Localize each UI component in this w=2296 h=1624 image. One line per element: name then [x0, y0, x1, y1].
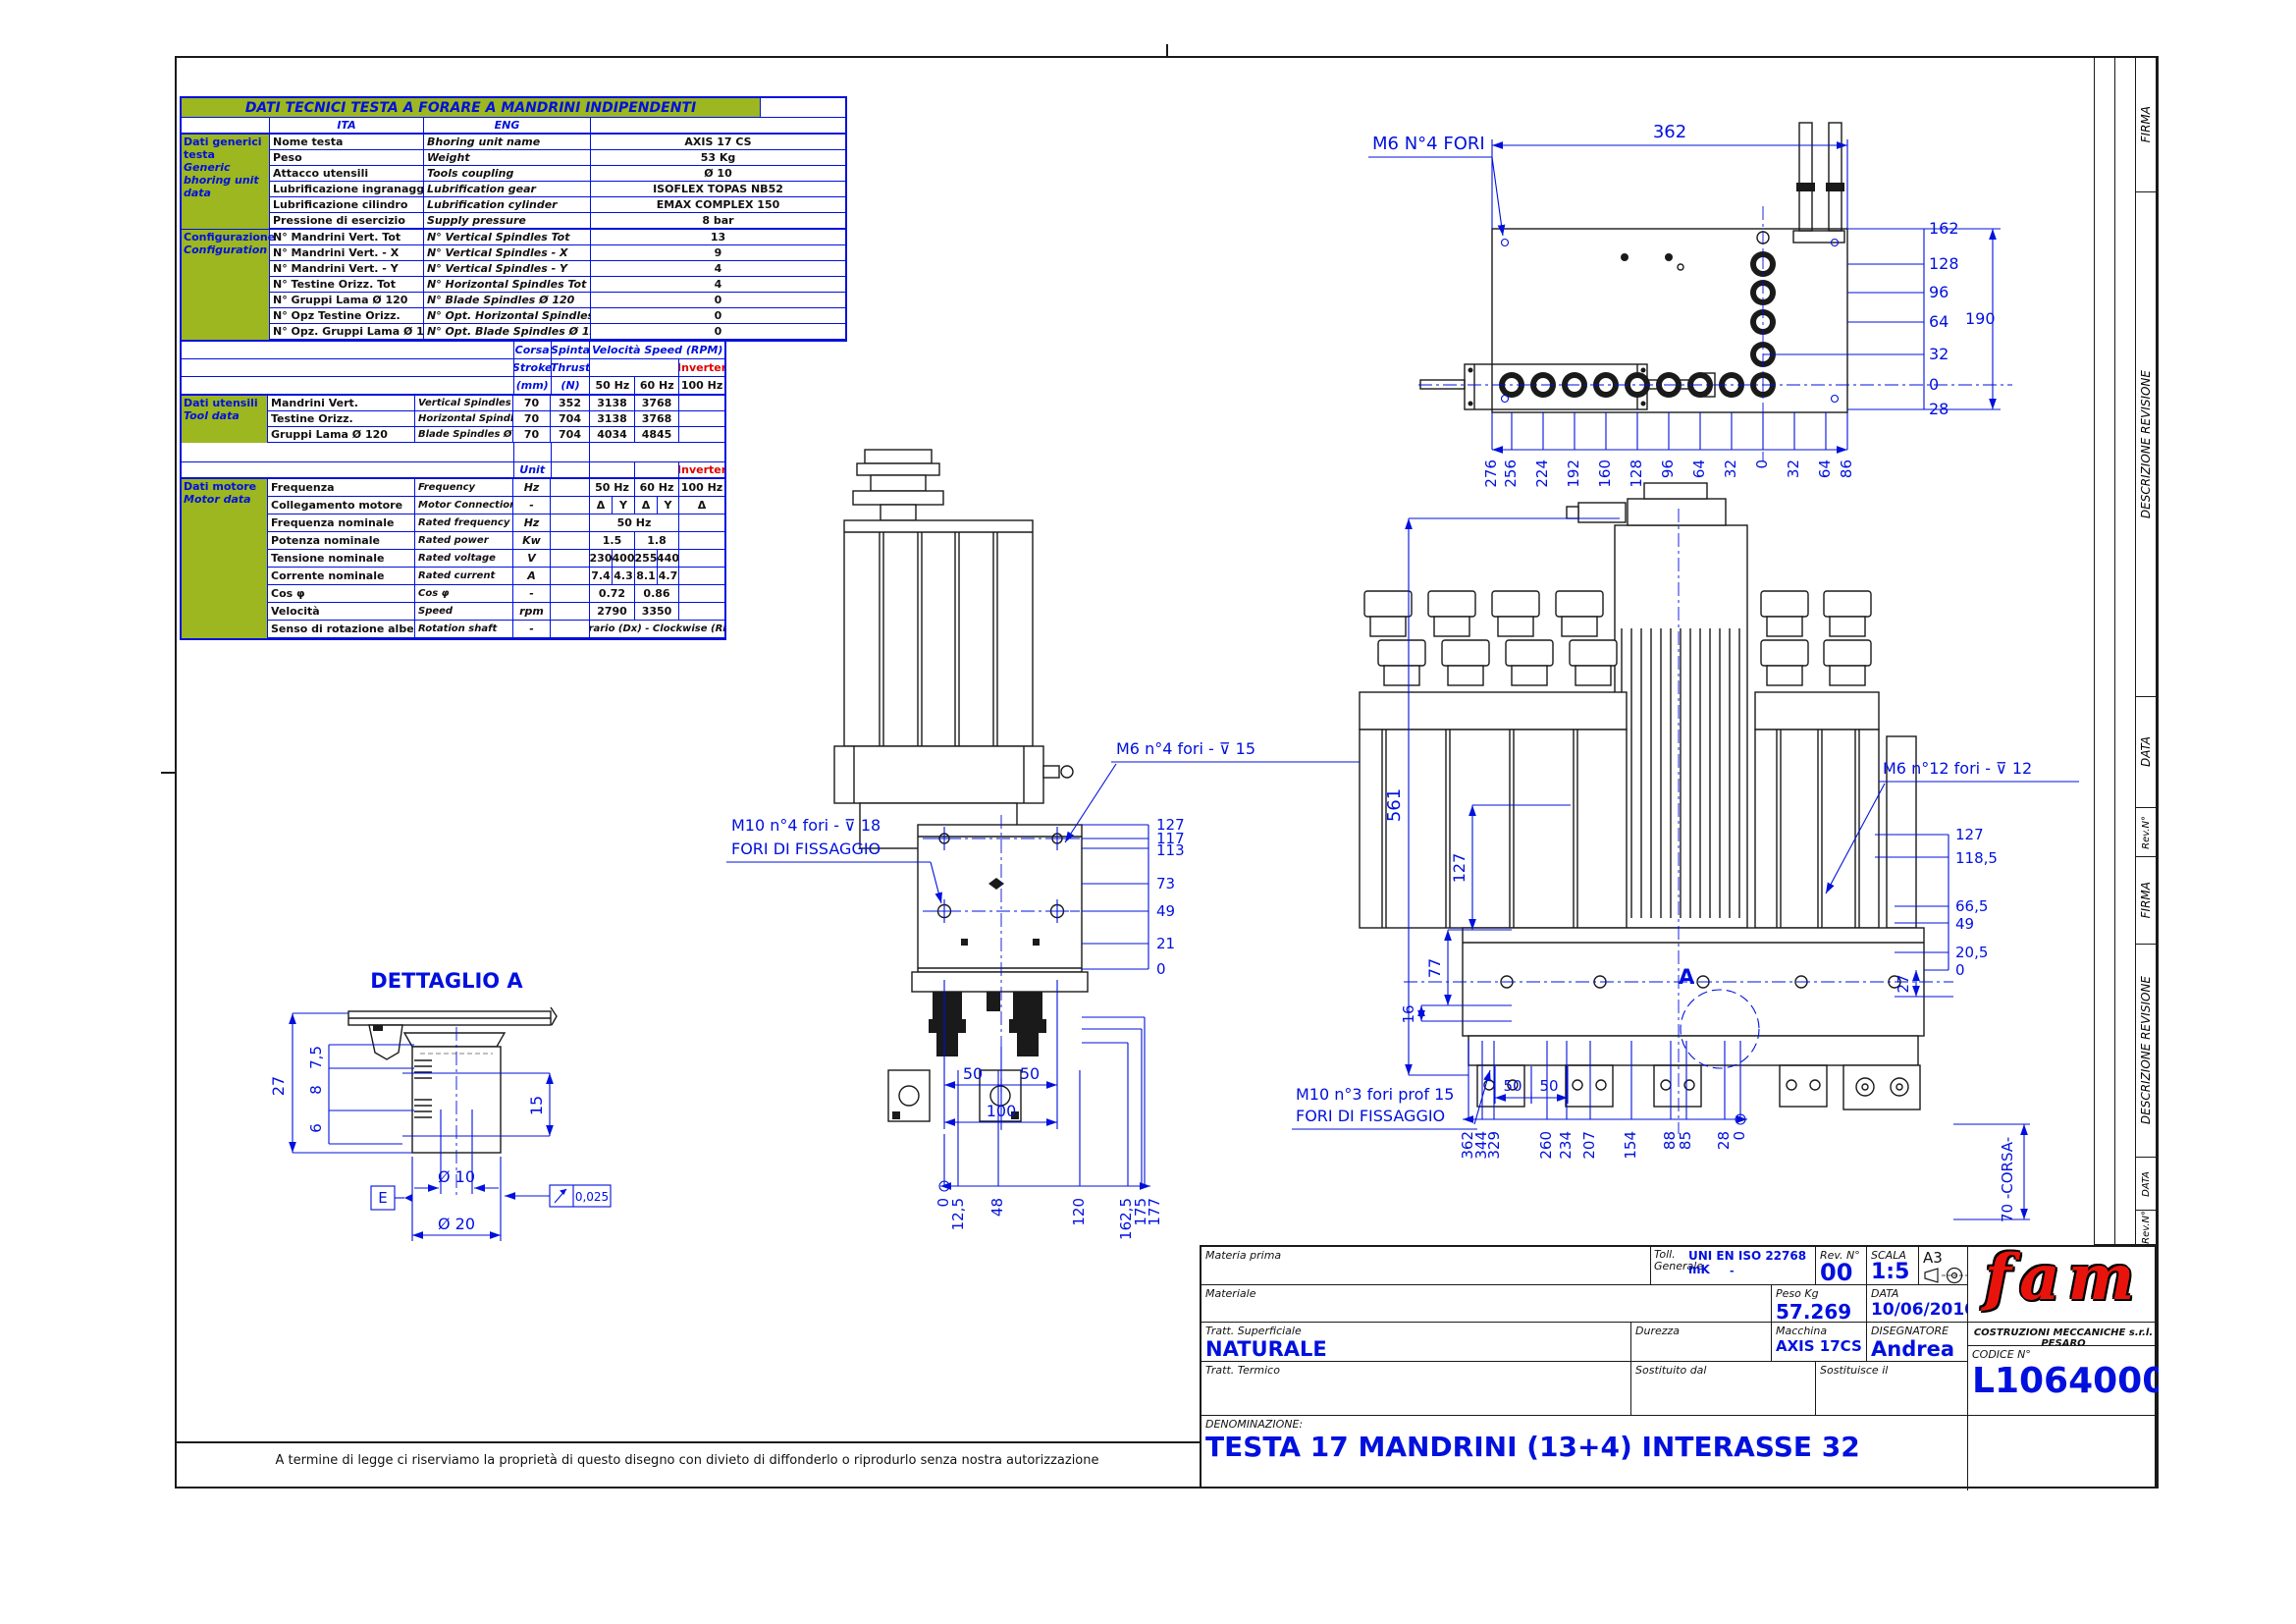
- blank-cell: [182, 359, 514, 377]
- tratt-superficiale-cell: Tratt. Superficiale NATURALE: [1201, 1323, 1631, 1362]
- svg-text:177: 177: [1146, 1198, 1163, 1226]
- svg-text:49: 49: [1955, 915, 1974, 933]
- group-tool: Dati utensili Tool data: [182, 396, 268, 443]
- svg-text:260: 260: [1537, 1131, 1555, 1160]
- svg-text:207: 207: [1580, 1131, 1598, 1160]
- svg-text:6: 6: [307, 1123, 325, 1133]
- front-m10-label: M10 n°4 fori - ⊽ 18: [731, 816, 881, 835]
- unit-header-row: Unit Inverter: [182, 462, 724, 478]
- svg-text:0: 0: [1731, 1131, 1748, 1141]
- tratt-termico-cell: Tratt. Termico: [1201, 1362, 1631, 1416]
- sostituito-cell: Sostituito dal: [1631, 1362, 1816, 1416]
- svg-text:66,5: 66,5: [1955, 897, 1988, 915]
- section-configuration: Configurazione Configuration N° Mandrini…: [182, 229, 845, 340]
- svg-text:64: 64: [1816, 460, 1834, 478]
- blank-cell: [514, 443, 552, 462]
- revision-label: DATA: [2136, 1158, 2156, 1211]
- materiale-cell: Materiale: [1201, 1285, 1772, 1323]
- svg-text:77: 77: [1425, 958, 1444, 978]
- side-m6-label: M6 n°12 fori - ⊽ 12: [1883, 759, 2032, 778]
- blank-cell: [1968, 1416, 2159, 1490]
- svg-text:49: 49: [1156, 902, 1175, 920]
- macchina-cell: Macchina AXIS 17CS: [1772, 1323, 1867, 1362]
- revision-labels-col: FIRMA DESCRIZIONE REVISIONE DATA Rev.N° …: [2136, 57, 2156, 1244]
- svg-text:Ø 20: Ø 20: [438, 1215, 475, 1233]
- revision-strip: FIRMA DESCRIZIONE REVISIONE DATA Rev.N° …: [2094, 56, 2157, 1245]
- svg-text:32: 32: [1785, 460, 1802, 478]
- svg-text:100: 100: [987, 1102, 1017, 1120]
- svg-text:113: 113: [1156, 841, 1185, 859]
- svg-text:32: 32: [1929, 345, 1949, 363]
- svg-text:21: 21: [1156, 935, 1175, 952]
- revision-label: DATA: [2136, 697, 2156, 809]
- detail-a-drawing: DETTAGLIO A 27 7,5 8 6 15 Ø 10 Ø 20 E: [255, 962, 677, 1286]
- row-label: Nome testa: [270, 135, 424, 150]
- projection-symbol-icon: [1923, 1267, 1968, 1284]
- stroke-header: Stroke: [514, 359, 552, 377]
- datum-e: E: [378, 1189, 387, 1207]
- title-block: Materia prima Toll.Generale UNI EN ISO 2…: [1200, 1245, 2157, 1489]
- svg-text:234: 234: [1557, 1131, 1575, 1160]
- svg-text:128: 128: [1929, 254, 1959, 273]
- side-part-outline: [1360, 483, 1924, 1110]
- runout-value: 0,025: [575, 1190, 609, 1204]
- blank-cell: [591, 118, 845, 134]
- denominazione-cell: DENOMINAZIONE: TESTA 17 MANDRINI (13+4) …: [1201, 1416, 1968, 1490]
- side-view-drawing: 561 127 77 16 M6 n°12 fori - ⊽ 12 127 11…: [1266, 481, 2081, 1247]
- dim-27: 27: [1895, 974, 1912, 993]
- unit-header: Unit: [514, 462, 552, 478]
- formato-cell: A3: [1919, 1247, 1968, 1285]
- revision-label: Rev.N°: [2136, 1211, 2156, 1244]
- fold-mark-left: [161, 772, 177, 774]
- svg-text:50: 50: [1020, 1064, 1040, 1083]
- side-m10-label: M10 n°3 fori prof 15: [1296, 1085, 1454, 1104]
- speed-header: Velocità Speed (RPM): [590, 342, 724, 359]
- legal-disclaimer: A termine di legge ci riserviamo la prop…: [245, 1453, 1129, 1468]
- side-fiss-label: FORI DI FISSAGGIO: [1296, 1107, 1445, 1125]
- blank-separator-row: [182, 443, 724, 462]
- section-tool: Dati utensili Tool data Mandrini Vert.Ve…: [182, 395, 724, 443]
- speed-header-row1: Corsa Spinta Velocità Speed (RPM): [182, 342, 724, 359]
- inverter-header: Inverter: [679, 359, 724, 377]
- hz50-header: 50 Hz: [590, 377, 635, 395]
- svg-text:15: 15: [527, 1096, 546, 1115]
- durezza-cell: Durezza: [1631, 1323, 1772, 1362]
- svg-text:0: 0: [1753, 460, 1771, 469]
- corsa-header: Corsa: [514, 342, 552, 359]
- svg-text:8: 8: [307, 1085, 325, 1095]
- peso-cell: Peso Kg 57.269 kg: [1772, 1285, 1867, 1323]
- front-part-outline: [834, 450, 1088, 1121]
- svg-text:96: 96: [1659, 460, 1677, 478]
- rev-cell: Rev. N° 00: [1816, 1247, 1867, 1285]
- svg-text:32: 32: [1722, 460, 1739, 478]
- blank-cell: [182, 342, 514, 359]
- data-cell: DATA 10/06/2010: [1867, 1285, 1968, 1323]
- materia-prima-cell: Materia prima: [1201, 1247, 1651, 1285]
- revision-label: Rev.N°: [2136, 808, 2156, 856]
- svg-text:64: 64: [1690, 460, 1708, 478]
- table-upper-block: DATI TECNICI TESTA A FORARE A MANDRINI I…: [180, 96, 847, 342]
- plan-spindles: [1499, 232, 1776, 398]
- row-value: AXIS 17 CS: [591, 135, 845, 150]
- svg-text:73: 73: [1156, 875, 1175, 893]
- svg-text:20,5: 20,5: [1955, 944, 1988, 961]
- blank-cell: [182, 443, 514, 462]
- corsa-label: 70 -CORSA-: [1999, 1137, 2016, 1222]
- plan-hole-label: M6 N°4 FORI: [1372, 134, 1485, 154]
- spinta-header: Spinta: [552, 342, 591, 359]
- scala-cell: SCALA 1:5: [1867, 1247, 1919, 1285]
- col-ita: ITA: [270, 118, 424, 134]
- dim-362: 362: [1653, 122, 1686, 142]
- codice-cell: CODICE N° L10640001: [1968, 1346, 2159, 1416]
- svg-text:7,5: 7,5: [307, 1046, 325, 1069]
- logo-cell: fam: [1968, 1247, 2159, 1323]
- fold-mark-top: [1166, 44, 1168, 58]
- svg-text:50: 50: [963, 1064, 983, 1083]
- revision-label: FIRMA: [2136, 857, 2156, 945]
- plan-view-drawing: 362 M6 N°4 FORI 162 128 96 64 32 0 28 19…: [1364, 88, 2042, 501]
- speed-header-row2: Stroke Thrust Inverter: [182, 359, 724, 377]
- speed-header-row3: (mm) (N) 50 Hz 60 Hz 100 Hz: [182, 377, 724, 395]
- svg-text:85: 85: [1677, 1131, 1694, 1150]
- hz100-header: 100 Hz: [679, 377, 724, 395]
- sostituisce-cell: Sostituisce il: [1816, 1362, 1968, 1416]
- svg-text:0: 0: [1929, 375, 1939, 394]
- svg-text:27: 27: [269, 1076, 288, 1096]
- blank-cell: [552, 443, 591, 462]
- front-fiss-label: FORI DI FISSAGGIO: [731, 839, 881, 858]
- mm-header: (mm): [514, 377, 552, 395]
- company-cell: COSTRUZIONI MECCANICHE s.r.l. PESARO: [1968, 1323, 2159, 1346]
- svg-text:329: 329: [1485, 1131, 1503, 1160]
- table-title-row: DATI TECNICI TESTA A FORARE A MANDRINI I…: [182, 98, 845, 118]
- blank-cell: [590, 359, 679, 377]
- blank-cell: [590, 462, 635, 478]
- svg-text:64: 64: [1929, 312, 1949, 331]
- blank-cell: [552, 462, 591, 478]
- svg-text:0: 0: [1955, 961, 1965, 979]
- section-generic: Dati generici testa Generic bhoring unit…: [182, 134, 845, 229]
- table-lower-block: Corsa Spinta Velocità Speed (RPM) Stroke…: [180, 342, 726, 640]
- plan-part-outline: [1420, 123, 1847, 412]
- table-title-stub: [761, 98, 845, 118]
- revision-col-1: [2095, 57, 2115, 1244]
- disegnatore-cell: DISEGNATORE Andrea: [1867, 1323, 1968, 1362]
- group-generic: Dati generici testa Generic bhoring unit…: [182, 135, 270, 229]
- svg-text:118,5: 118,5: [1955, 849, 1998, 867]
- col-eng: ENG: [424, 118, 591, 134]
- svg-text:120: 120: [1070, 1198, 1088, 1226]
- revision-label: DESCRIZIONE REVISIONE: [2136, 192, 2156, 696]
- detail-title: DETTAGLIO A: [370, 969, 523, 993]
- blank-cell: [182, 462, 514, 478]
- dim-561: 561: [1384, 788, 1405, 822]
- front-m6-label: M6 n°4 fori - ⊽ 15: [1116, 739, 1255, 758]
- fam-logo: fam: [1972, 1249, 2155, 1308]
- svg-text:154: 154: [1622, 1131, 1639, 1160]
- svg-text:0: 0: [1156, 960, 1166, 978]
- revision-col-2: [2115, 57, 2136, 1244]
- table-title: DATI TECNICI TESTA A FORARE A MANDRINI I…: [182, 98, 761, 118]
- section-motor: Dati motore Motor data FrequenzaFrequenc…: [182, 478, 724, 638]
- svg-text:86: 86: [1838, 460, 1855, 478]
- footer-separator: [177, 1441, 1201, 1443]
- group-configuration: Configurazione Configuration: [182, 230, 270, 340]
- svg-text:96: 96: [1929, 283, 1949, 301]
- plan-dimensions: 362 M6 N°4 FORI 162 128 96 64 32 0 28 19…: [1368, 122, 2001, 488]
- svg-text:12,5: 12,5: [949, 1198, 967, 1230]
- svg-text:16: 16: [1400, 1004, 1417, 1023]
- svg-text:48: 48: [988, 1198, 1006, 1217]
- hz60-header: 60 Hz: [635, 377, 679, 395]
- blank-cell: [635, 462, 679, 478]
- revision-label: DESCRIZIONE REVISIONE: [2136, 945, 2156, 1158]
- group-motor: Dati motore Motor data: [182, 479, 268, 638]
- thrust-header: Thrust: [552, 359, 591, 377]
- detail-a-mark: A: [1679, 965, 1695, 989]
- blank-cell: [182, 118, 270, 134]
- svg-text:Ø 10: Ø 10: [438, 1167, 475, 1186]
- revision-label: FIRMA: [2136, 57, 2156, 192]
- table-lang-header: ITA ENG: [182, 118, 845, 134]
- blank-cell: [182, 377, 514, 395]
- svg-text:50: 50: [1503, 1077, 1522, 1095]
- svg-text:50: 50: [1539, 1077, 1558, 1095]
- n-header: (N): [552, 377, 591, 395]
- dim-190: 190: [1965, 309, 1996, 328]
- tolleranza-cell: Toll.Generale UNI EN ISO 22768 mK -: [1651, 1247, 1816, 1285]
- svg-text:127: 127: [1955, 826, 1984, 843]
- svg-text:127: 127: [1450, 853, 1468, 884]
